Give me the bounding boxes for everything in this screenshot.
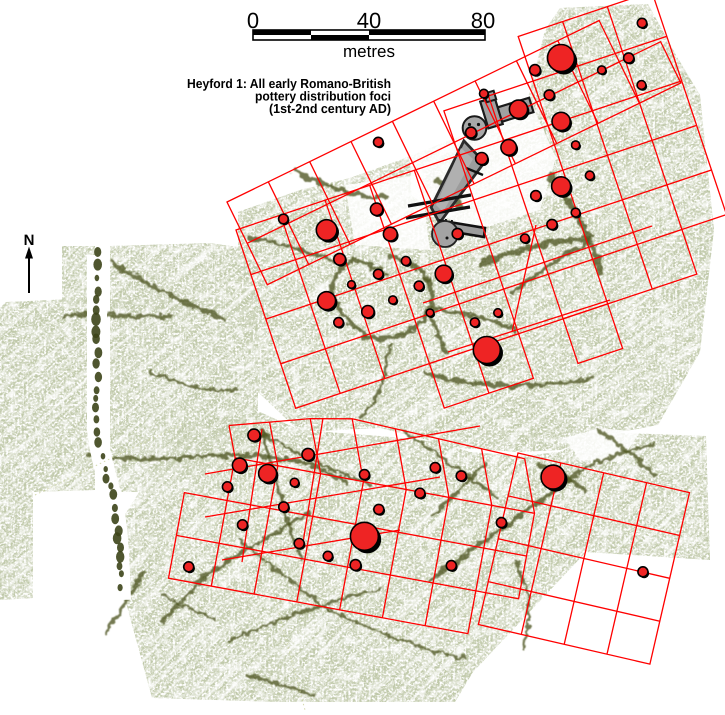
svg-text:40: 40 xyxy=(357,8,381,33)
svg-text:metres: metres xyxy=(343,42,395,61)
svg-text:80: 80 xyxy=(471,8,495,33)
svg-text:(1st-2nd century AD): (1st-2nd century AD) xyxy=(269,101,391,116)
svg-text:N: N xyxy=(24,232,35,249)
svg-text:0: 0 xyxy=(247,8,259,33)
